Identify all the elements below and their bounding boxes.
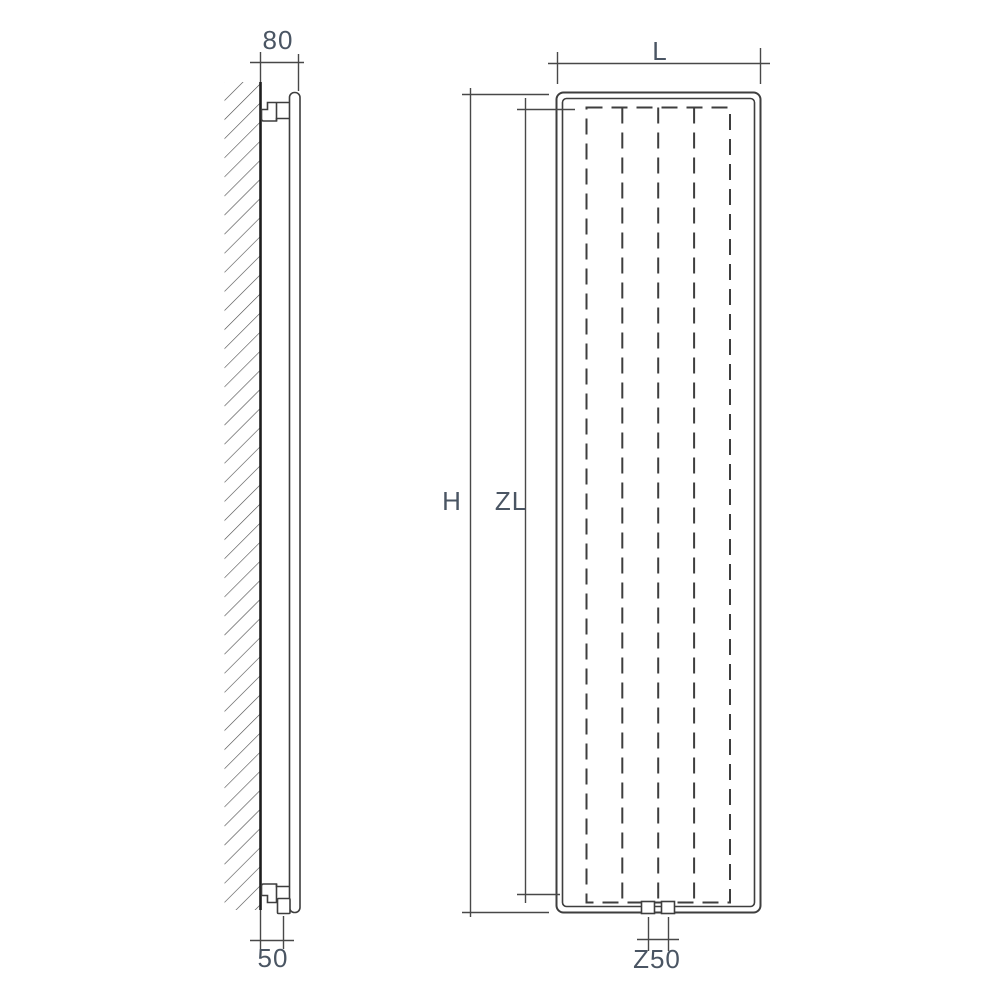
front-view: L H ZL Z50 [442,36,770,974]
radiator-dimension-drawing: 80 50 [0,0,1000,1000]
pipe-connection-side [278,899,291,914]
dim-label-z50: Z50 [633,944,681,974]
side-view: 80 50 [225,25,305,973]
dim-connection-spacing: Z50 [633,917,681,974]
wall-hatch [225,82,261,910]
mounting-bracket-top [262,103,290,122]
pipe-connection-right [662,902,675,914]
dim-label-80: 80 [263,25,294,55]
dim-top-offset: 80 [250,25,304,91]
dim-label-l: L [652,36,667,66]
dim-label-zl: ZL [495,486,527,516]
pipe-connection-left [642,902,655,914]
radiator-side-panel [290,93,301,913]
drawing-svg: 80 50 [0,0,1000,1000]
dim-label-h: H [442,486,462,516]
dim-bottom-offset: 50 [250,910,294,973]
dim-label-50: 50 [258,943,289,973]
dim-width: L [548,36,770,84]
